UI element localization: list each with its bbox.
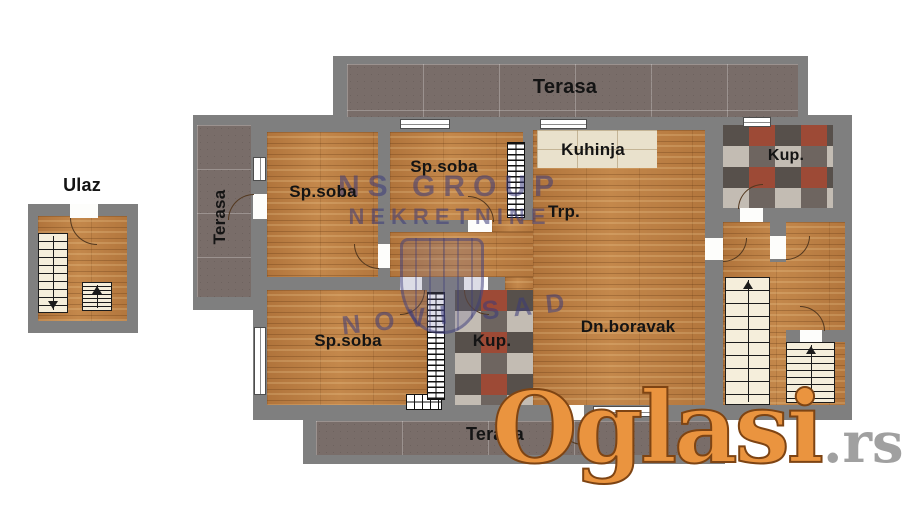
living-room-label: Dn.boravak bbox=[548, 317, 708, 337]
entrance-door-gap bbox=[70, 204, 98, 218]
floor-plan: Ulaz Terasa Terasa Terasa Sp.soba Sp.sob… bbox=[0, 0, 903, 517]
bedroom-top-mid-label: Sp.soba bbox=[384, 157, 504, 177]
dining-label: Trp. bbox=[524, 202, 604, 222]
entrance-label: Ulaz bbox=[42, 174, 122, 196]
entrance-staircase-icon bbox=[38, 233, 68, 313]
bedroom-top-left-label: Sp.soba bbox=[263, 182, 383, 202]
right-wing-inner-door-gap bbox=[770, 236, 786, 259]
brand-tld: .rs bbox=[823, 415, 903, 471]
terrace-left-label: Terasa bbox=[209, 172, 231, 262]
bathroom-top-right-door-gap bbox=[740, 208, 763, 222]
brand-name: Oglasi bbox=[492, 380, 821, 478]
living-to-right-wing-door-gap bbox=[705, 238, 723, 260]
bathroom-top-window-icon bbox=[743, 117, 771, 127]
brand-watermark: Oglasi .rs bbox=[492, 380, 903, 478]
terrace-left-window-icon bbox=[253, 157, 266, 181]
kitchen-label: Kuhinja bbox=[533, 140, 653, 160]
bedroom-top-left-door-gap bbox=[378, 244, 390, 268]
bathroom-middle-label: Kup. bbox=[442, 331, 542, 351]
bathroom-top-right-label: Kup. bbox=[736, 146, 836, 166]
bedroom-bottom-window-icon bbox=[254, 327, 266, 395]
kitchen-window-icon bbox=[540, 119, 587, 129]
entrance-lower-staircase-icon bbox=[82, 282, 112, 311]
bathroom-top-right-floor bbox=[723, 125, 833, 208]
bedroom-bottom-label: Sp.soba bbox=[288, 331, 408, 351]
bedroom-top-mid-window-icon bbox=[400, 119, 450, 129]
hallway-passage-2 bbox=[505, 277, 533, 290]
right-room-lower-door-gap bbox=[800, 330, 822, 342]
terrace-top-label: Terasa bbox=[465, 75, 665, 99]
